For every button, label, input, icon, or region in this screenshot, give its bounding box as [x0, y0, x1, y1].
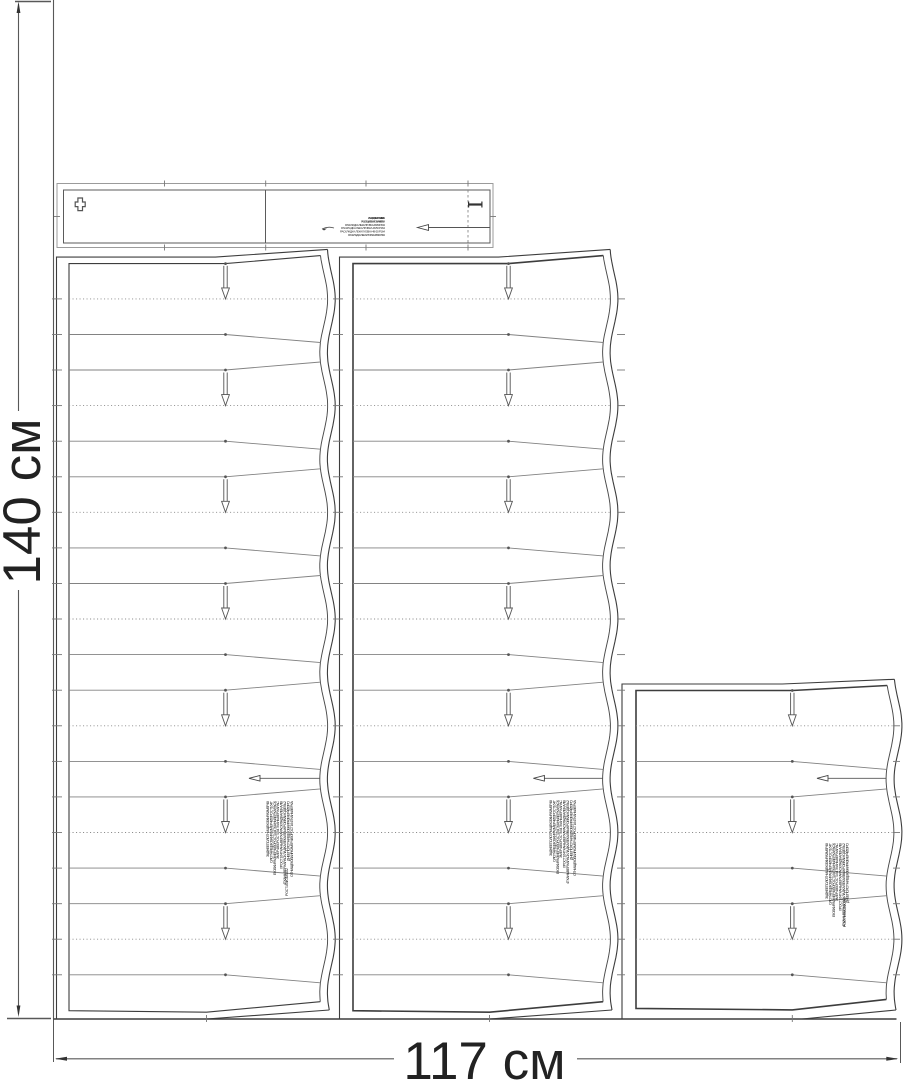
svg-text:ДНЕЕПОЛОТНИЩЕЮБКИРАЗМЕР4850РО: ДНЕЕПОЛОТНИЩЕЮБКИРАЗМЕР4850РО: [845, 843, 849, 903]
svg-text:РОСТ164ЮБКА52: РОСТ164ЮБКА52: [285, 868, 289, 896]
svg-text:РОСТ164ЮБКА52: РОСТ164ЮБКА52: [843, 897, 847, 927]
svg-text:РАСКЛАДКА ЛЕКАЛ ЮБКА 48-50 Р16: РАСКЛАДКА ЛЕКАЛ ЮБКА 48-50 Р164: [348, 233, 385, 237]
svg-text:140 см: 140 см: [0, 418, 52, 584]
svg-text:ОТНИЩЕЮБКИРАЗМЕР4850РОСТ164ТКА: ОТНИЩЕЮБКИРАЗМЕР4850РОСТ164ТКАНЬВЕРХА: [573, 799, 577, 876]
svg-text:117 см: 117 см: [403, 1032, 565, 1080]
svg-text:ОТНИЩЕЮБКИРАЗМЕР4850РОСТ164ТКА: ОТНИЩЕЮБКИРАЗМЕР4850РОСТ164ТКАНЬВЕРХА: [290, 800, 294, 877]
